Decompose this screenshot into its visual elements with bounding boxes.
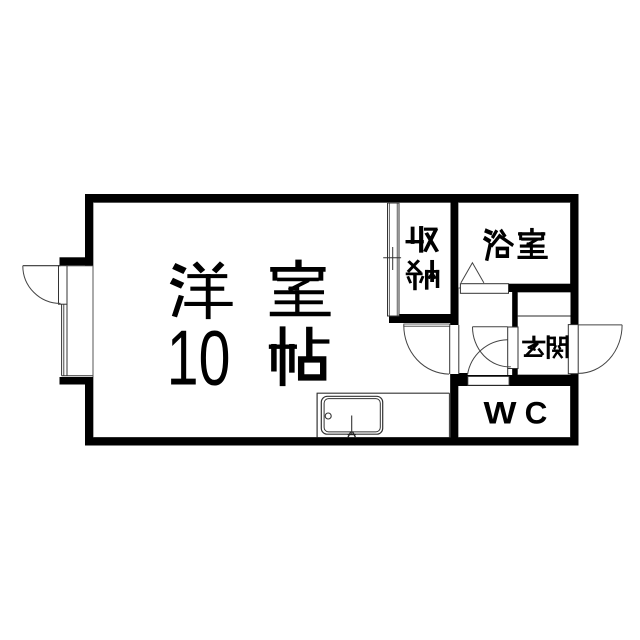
svg-text:W: W xyxy=(484,395,517,431)
svg-text:10: 10 xyxy=(167,313,231,401)
svg-text:C: C xyxy=(525,395,548,431)
